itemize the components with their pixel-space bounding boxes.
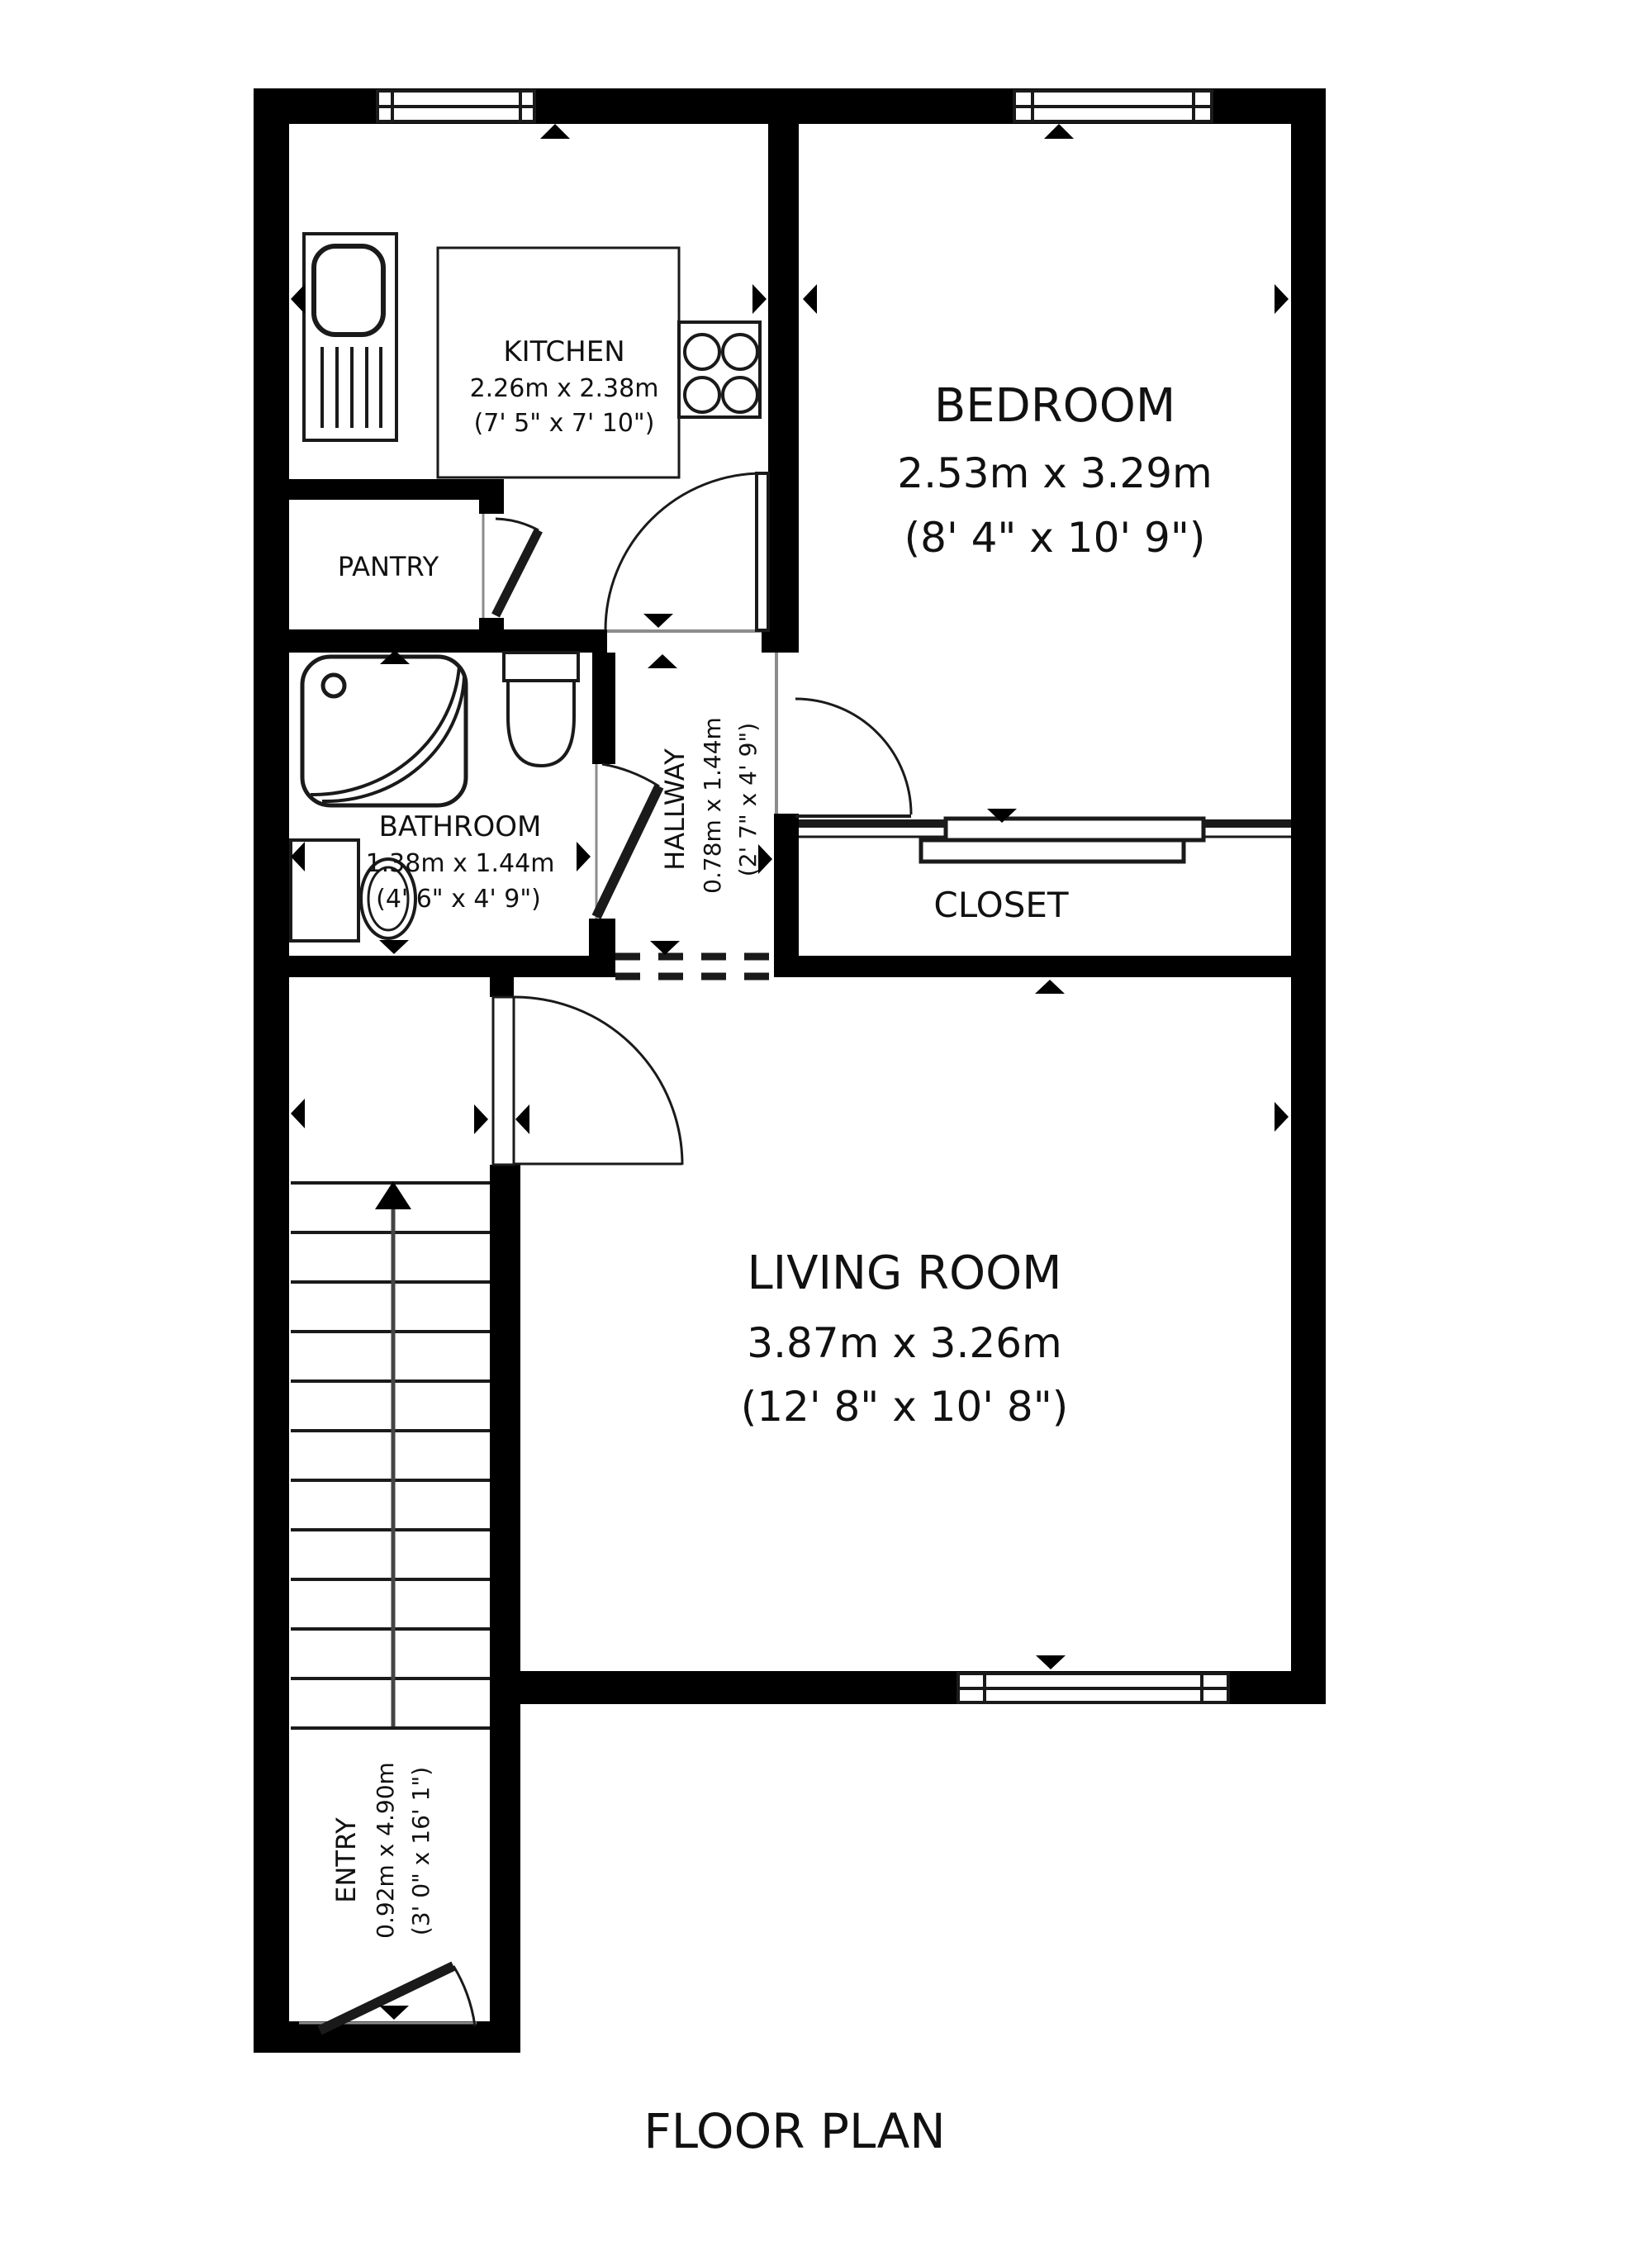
- hallway-open-passage: [615, 957, 774, 976]
- window-living: [958, 1674, 1228, 1702]
- marker-right-icon: [1275, 1102, 1289, 1132]
- kitchen-label: KITCHEN 2.26m x 2.38m (7' 5" x 7' 10"): [470, 335, 659, 438]
- bedroom-door: [776, 653, 911, 816]
- floor-plan-drawing: KITCHEN 2.26m x 2.38m (7' 5" x 7' 10") B…: [0, 0, 1652, 2246]
- wall-pantry-right-top: [479, 500, 504, 514]
- wall-stairs-post: [490, 977, 514, 997]
- window-bedroom: [1014, 91, 1212, 121]
- entry-imperial: (3' 0" x 16' 1"): [407, 1767, 434, 1935]
- bathroom-metric: 1.38m x 1.44m: [366, 849, 555, 878]
- kitchen-imperial: (7' 5" x 7' 10"): [474, 409, 655, 438]
- marker-down-icon: [650, 941, 680, 955]
- marker-right-icon: [577, 842, 591, 871]
- entry-label: ENTRY 0.92m x 4.90m (3' 0" x 16' 1"): [330, 1762, 434, 1939]
- hallway-metric: 0.78m x 1.44m: [699, 717, 726, 894]
- bedroom-metric: 2.53m x 3.29m: [897, 449, 1212, 497]
- stairs-up-arrow-icon: [375, 1181, 411, 1209]
- bedroom-name: BEDROOM: [934, 379, 1175, 433]
- wall-kitchen-bedroom: [768, 124, 799, 630]
- wall-living-top-left: [254, 956, 615, 977]
- bathroom-label: BATHROOM 1.38m x 1.44m (4' 6" x 4' 9"): [366, 810, 555, 914]
- living-room-metric: 3.87m x 3.26m: [747, 1319, 1061, 1367]
- wall-bathroom-right-top: [592, 653, 615, 764]
- marker-left-icon: [803, 284, 817, 314]
- closet-name: CLOSET: [933, 885, 1068, 925]
- living-room-name: LIVING ROOM: [747, 1246, 1061, 1300]
- bathroom-imperial: (4' 6" x 4' 9"): [376, 885, 541, 914]
- marker-down-icon: [379, 2006, 409, 2020]
- kitchen-metric: 2.26m x 2.38m: [470, 374, 659, 403]
- marker-right-icon: [474, 1104, 488, 1134]
- marker-down-icon: [643, 614, 673, 628]
- closet-door-panel: [921, 840, 1184, 862]
- living-room-door: [493, 997, 682, 1165]
- shower: [302, 657, 466, 805]
- wall-pantry-top: [289, 479, 504, 500]
- marker-up-icon: [540, 124, 570, 139]
- window-kitchen: [377, 91, 534, 121]
- marker-down-icon: [1036, 1655, 1066, 1669]
- wall-living-top-right: [774, 956, 1326, 977]
- hallway-name: HALLWAY: [659, 748, 691, 871]
- page-title: FLOOR PLAN: [643, 2103, 945, 2159]
- wall-stairs-living: [490, 1165, 520, 2053]
- marker-down-icon: [379, 940, 409, 954]
- toilet: [504, 653, 578, 766]
- marker-right-icon: [1275, 284, 1289, 314]
- living-room-imperial: (12' 8" x 10' 8"): [741, 1383, 1069, 1431]
- wall-right: [1291, 88, 1326, 1704]
- hallway-imperial: (2' 7" x 4' 9"): [734, 723, 762, 876]
- closet-door-panel: [946, 819, 1203, 840]
- kitchen-door: [605, 473, 768, 631]
- wall-kitchen-bottom: [254, 629, 607, 653]
- bedroom-label: BEDROOM 2.53m x 3.29m (8' 4" x 10' 9"): [897, 379, 1212, 562]
- entry-door: [299, 1966, 477, 2030]
- stairs: [291, 1181, 490, 1728]
- entry-metric: 0.92m x 4.90m: [372, 1762, 399, 1939]
- wall-hallway-right: [774, 814, 799, 956]
- bedroom-imperial: (8' 4" x 10' 9"): [904, 514, 1206, 562]
- marker-up-icon: [648, 654, 677, 668]
- marker-left-icon: [291, 1099, 305, 1128]
- living-room-label: LIVING ROOM 3.87m x 3.26m (12' 8" x 10' …: [741, 1246, 1069, 1431]
- wall-corner-kitchen-door: [762, 630, 799, 653]
- kitchen-sink: [304, 234, 396, 440]
- marker-right-icon: [752, 284, 767, 314]
- stove: [679, 322, 760, 417]
- marker-left-icon: [515, 1104, 529, 1134]
- kitchen-name: KITCHEN: [503, 335, 624, 368]
- wall-pantry-right-bottom: [479, 618, 504, 629]
- wall-left: [254, 88, 289, 2053]
- wall-bathroom-right-bottom: [589, 919, 615, 956]
- marker-left-icon: [291, 284, 305, 314]
- marker-up-icon: [1035, 980, 1065, 994]
- closet-sliding-doors: [799, 819, 1291, 862]
- hallway-label: HALLWAY 0.78m x 1.44m (2' 7" x 4' 9"): [659, 717, 762, 894]
- wall-bottom-entry: [254, 2021, 520, 2053]
- bathroom-name: BATHROOM: [379, 810, 542, 843]
- floor-plan: KITCHEN 2.26m x 2.38m (7' 5" x 7' 10") B…: [0, 0, 1652, 2246]
- pantry-name: PANTRY: [338, 551, 439, 582]
- entry-name: ENTRY: [330, 1817, 362, 1903]
- bathroom-door: [596, 764, 659, 919]
- pantry-door: [483, 514, 539, 618]
- marker-up-icon: [1044, 124, 1074, 139]
